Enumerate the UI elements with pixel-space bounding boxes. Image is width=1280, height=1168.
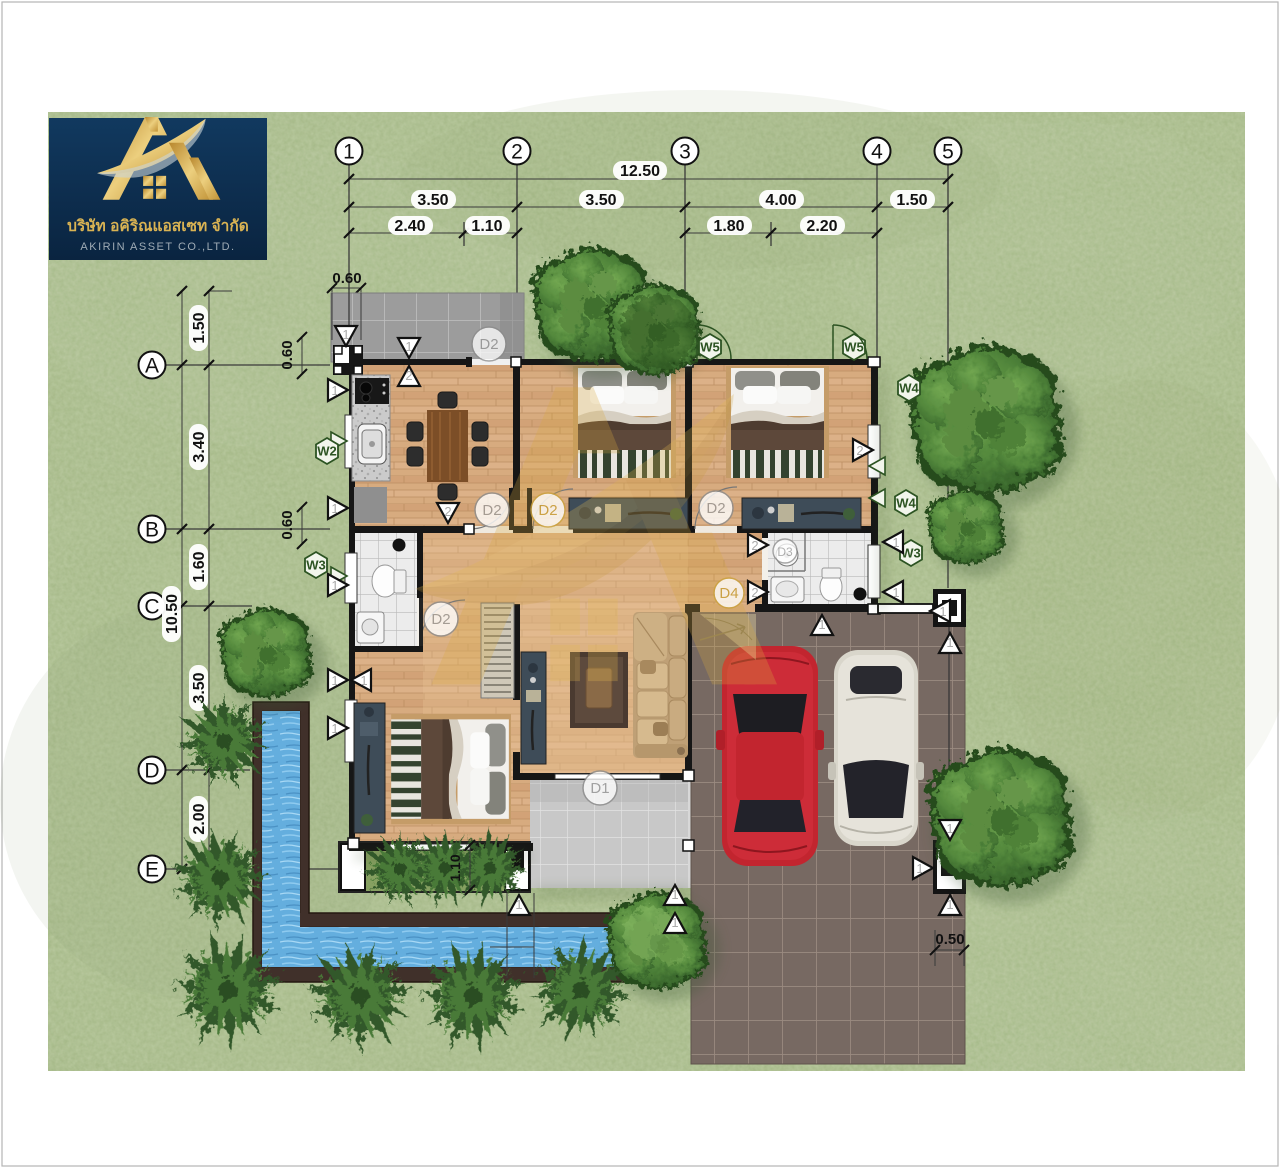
svg-text:0.60: 0.60 xyxy=(279,510,296,539)
svg-text:D4: D4 xyxy=(719,585,738,602)
svg-text:1: 1 xyxy=(331,578,338,593)
svg-text:1.60: 1.60 xyxy=(191,551,208,582)
svg-text:3.50: 3.50 xyxy=(585,192,616,209)
svg-text:W4: W4 xyxy=(896,496,916,511)
svg-text:1: 1 xyxy=(916,861,923,876)
svg-text:1: 1 xyxy=(342,327,349,342)
svg-text:2: 2 xyxy=(405,368,412,383)
svg-text:W3: W3 xyxy=(901,546,921,561)
svg-text:3.50: 3.50 xyxy=(417,192,448,209)
svg-text:2.20: 2.20 xyxy=(806,218,837,235)
svg-text:D2: D2 xyxy=(706,500,725,517)
svg-text:0.60: 0.60 xyxy=(332,270,361,287)
svg-text:1: 1 xyxy=(892,535,899,550)
svg-text:1: 1 xyxy=(360,673,367,688)
svg-text:2: 2 xyxy=(511,141,523,164)
svg-text:W5: W5 xyxy=(844,340,864,355)
svg-text:W4: W4 xyxy=(899,381,919,396)
svg-text:1.80: 1.80 xyxy=(713,218,744,235)
svg-text:1: 1 xyxy=(331,673,338,688)
svg-text:1.50: 1.50 xyxy=(191,312,208,343)
svg-text:1.10: 1.10 xyxy=(447,854,463,881)
svg-text:W2: W2 xyxy=(317,444,337,459)
svg-text:AKIRIN ASSET CO.,LTD.: AKIRIN ASSET CO.,LTD. xyxy=(80,241,235,253)
svg-text:1: 1 xyxy=(515,897,522,912)
svg-text:1.50: 1.50 xyxy=(896,192,927,209)
svg-text:1: 1 xyxy=(671,915,678,930)
svg-text:4: 4 xyxy=(871,141,883,164)
svg-text:1: 1 xyxy=(331,501,338,516)
svg-text:1: 1 xyxy=(671,887,678,902)
svg-text:A: A xyxy=(145,355,159,378)
svg-text:บริษัท อคิริณแอสเซท จำกัด: บริษัท อคิริณแอสเซท จำกัด xyxy=(67,217,249,235)
svg-text:1: 1 xyxy=(892,585,899,600)
svg-text:2: 2 xyxy=(444,504,451,519)
svg-text:B: B xyxy=(145,519,159,542)
svg-text:1: 1 xyxy=(343,141,355,164)
svg-text:0.50: 0.50 xyxy=(935,931,964,948)
svg-text:D1: D1 xyxy=(590,780,609,797)
svg-text:E: E xyxy=(145,859,159,882)
svg-text:3.50: 3.50 xyxy=(191,672,208,703)
svg-text:1: 1 xyxy=(405,339,412,354)
svg-text:1: 1 xyxy=(331,721,338,736)
svg-text:1: 1 xyxy=(939,604,946,619)
svg-text:D3: D3 xyxy=(777,545,793,559)
svg-text:D2: D2 xyxy=(482,502,501,519)
svg-text:2: 2 xyxy=(751,585,758,600)
svg-text:2: 2 xyxy=(856,443,863,458)
svg-text:1: 1 xyxy=(946,897,953,912)
svg-text:2.00: 2.00 xyxy=(191,803,208,834)
svg-text:D: D xyxy=(144,760,159,783)
svg-text:W5: W5 xyxy=(700,340,720,355)
svg-text:2.40: 2.40 xyxy=(394,218,425,235)
svg-text:C: C xyxy=(144,596,159,619)
svg-text:0.60: 0.60 xyxy=(279,340,296,369)
svg-text:1: 1 xyxy=(331,383,338,398)
svg-text:4.00: 4.00 xyxy=(765,192,796,209)
svg-text:5: 5 xyxy=(942,141,954,164)
svg-text:1.10: 1.10 xyxy=(471,218,502,235)
svg-text:10.50: 10.50 xyxy=(164,594,181,634)
svg-text:D2: D2 xyxy=(479,336,498,353)
svg-text:12.50: 12.50 xyxy=(620,163,660,180)
svg-text:1: 1 xyxy=(946,635,953,650)
svg-text:D2: D2 xyxy=(431,611,450,628)
svg-text:3.40: 3.40 xyxy=(191,431,208,462)
svg-text:2: 2 xyxy=(751,538,758,553)
svg-text:1: 1 xyxy=(818,617,825,632)
svg-text:3: 3 xyxy=(679,141,691,164)
svg-text:W3: W3 xyxy=(306,558,326,573)
svg-text:D2: D2 xyxy=(538,502,557,519)
svg-text:1: 1 xyxy=(946,821,953,836)
